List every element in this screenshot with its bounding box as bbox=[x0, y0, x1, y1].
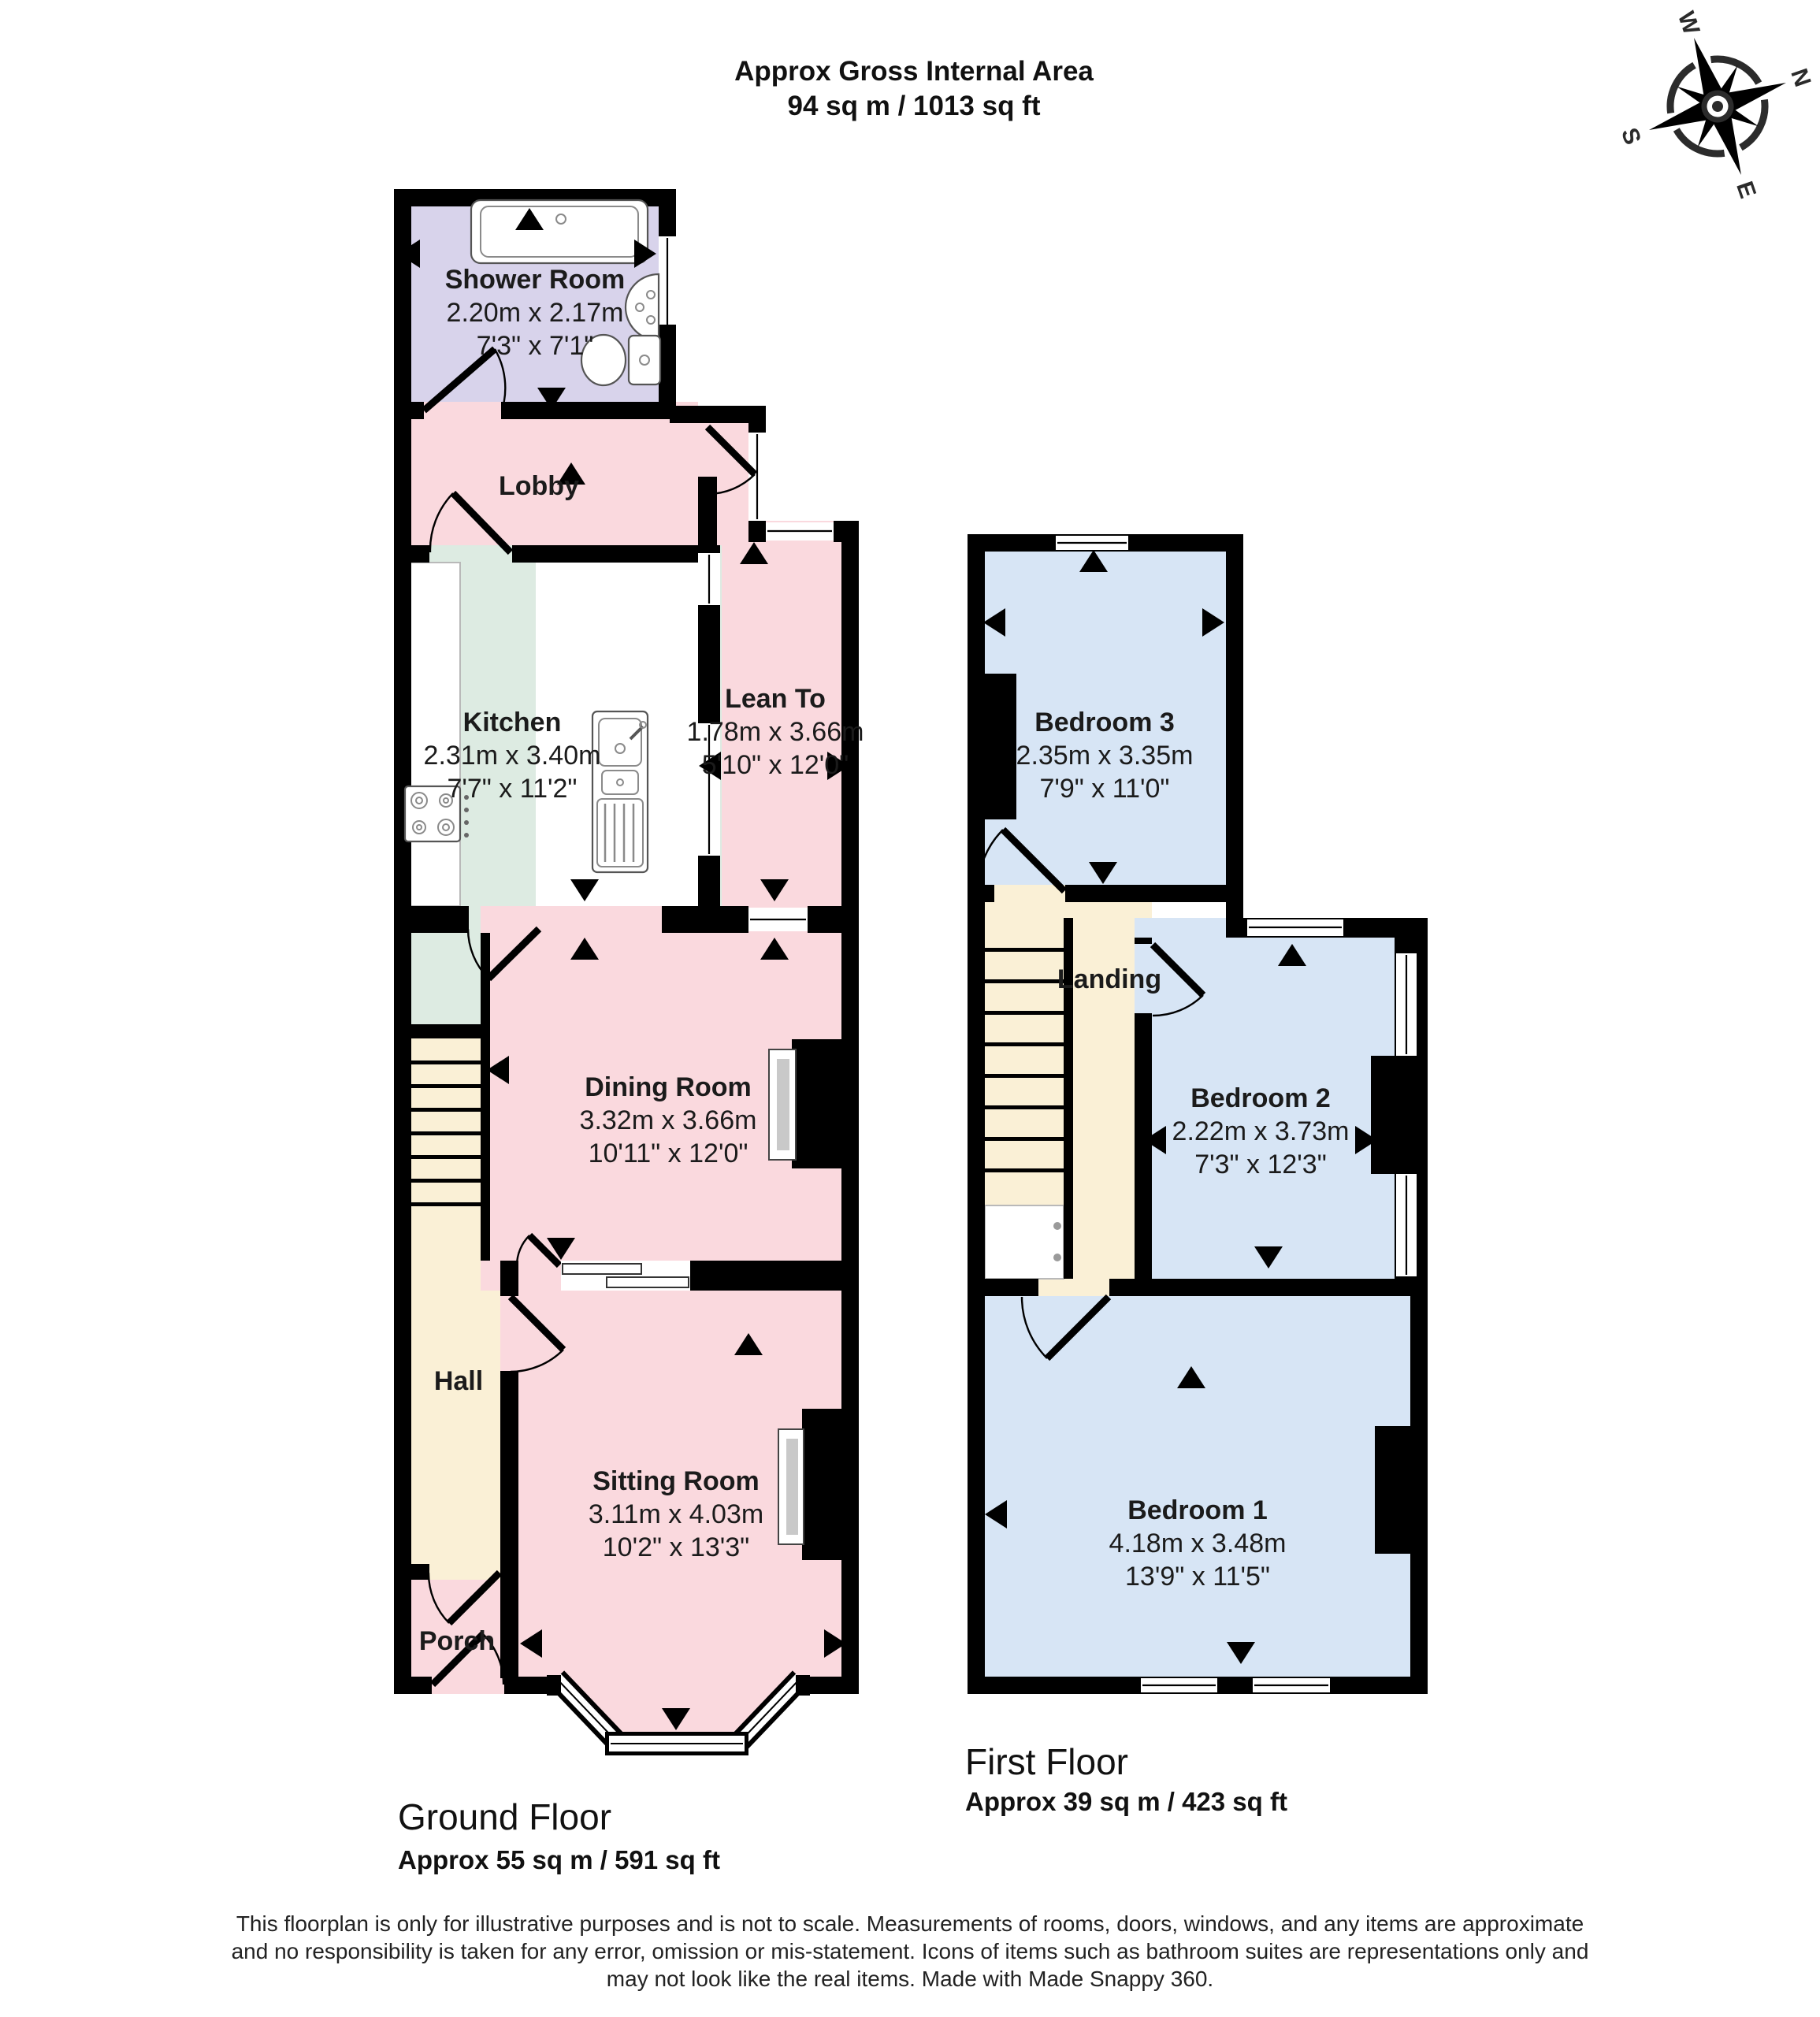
compass-e: E bbox=[1731, 178, 1761, 202]
page-title: Approx Gross Internal Area bbox=[734, 56, 1094, 87]
floorplan-canvas: Approx Gross Internal Area 94 sq m / 101… bbox=[0, 0, 1820, 2017]
svg-text:2.31m x 3.40m: 2.31m x 3.40m bbox=[424, 741, 601, 771]
svg-text:10'2" x 13'3": 10'2" x 13'3" bbox=[603, 1532, 749, 1562]
first-floor-plan: Bedroom 3 2.35m x 3.35m 7'9" x 11'0" Lan… bbox=[968, 534, 1428, 1694]
compass-n: N bbox=[1785, 65, 1815, 90]
svg-text:7'3" x 12'3": 7'3" x 12'3" bbox=[1194, 1150, 1327, 1179]
sitting-fireplace bbox=[778, 1409, 841, 1560]
disclaimer-line3: may not look like the real items. Made w… bbox=[607, 1967, 1213, 1991]
room-label-kitchen: Kitchen bbox=[463, 708, 562, 737]
room-label-sitting: Sitting Room bbox=[592, 1466, 760, 1496]
room-label-porch: Porch bbox=[419, 1626, 495, 1656]
page-subtitle: 94 sq m / 1013 sq ft bbox=[788, 91, 1041, 121]
disclaimer: This floorplan is only for illustrative … bbox=[232, 1911, 1589, 1991]
room-label-hall: Hall bbox=[434, 1366, 483, 1396]
compass-icon: N E S W bbox=[1586, 0, 1820, 232]
room-label-lean-to: Lean To bbox=[725, 684, 826, 714]
first-floor-title: First Floor bbox=[965, 1741, 1128, 1782]
bath-icon bbox=[471, 200, 648, 263]
ground-floor-title: Ground Floor bbox=[398, 1796, 611, 1837]
svg-text:2.20m x 2.17m: 2.20m x 2.17m bbox=[447, 298, 624, 328]
svg-text:13'9" x 11'5": 13'9" x 11'5" bbox=[1125, 1562, 1270, 1592]
svg-text:7'7" x 11'2": 7'7" x 11'2" bbox=[447, 774, 577, 804]
header: Approx Gross Internal Area 94 sq m / 101… bbox=[734, 56, 1094, 121]
room-label-bedroom2: Bedroom 2 bbox=[1190, 1083, 1331, 1113]
room-label-dining: Dining Room bbox=[585, 1072, 752, 1102]
room-label-lobby: Lobby bbox=[499, 471, 579, 501]
dining-sitting-sliding-door bbox=[561, 1261, 690, 1291]
first-floor-area: Approx 39 sq m / 423 sq ft bbox=[965, 1787, 1287, 1816]
room-label-shower: Shower Room bbox=[445, 265, 626, 295]
ground-floor-plan: Shower Room 2.20m x 2.17m 7'3" x 7'1" Lo… bbox=[394, 189, 864, 1755]
disclaimer-line2: and no responsibility is taken for any e… bbox=[232, 1939, 1589, 1963]
svg-text:3.11m x 4.03m: 3.11m x 4.03m bbox=[589, 1499, 763, 1529]
compass-w: W bbox=[1673, 9, 1705, 39]
svg-text:5'10" x 12'0": 5'10" x 12'0" bbox=[702, 750, 849, 780]
room-label-landing: Landing bbox=[1057, 964, 1161, 994]
cupboard-hinge-dot bbox=[1053, 1254, 1061, 1261]
svg-text:3.32m x 3.66m: 3.32m x 3.66m bbox=[580, 1105, 757, 1135]
svg-text:2.35m x 3.35m: 2.35m x 3.35m bbox=[1016, 741, 1194, 771]
svg-text:1.78m x 3.66m: 1.78m x 3.66m bbox=[687, 717, 864, 747]
floor-captions: Ground Floor Approx 55 sq m / 591 sq ft … bbox=[398, 1741, 1287, 1874]
svg-text:7'3" x 7'1": 7'3" x 7'1" bbox=[477, 331, 594, 361]
kitchen-worktop bbox=[408, 563, 460, 906]
svg-text:7'9" x 11'0": 7'9" x 11'0" bbox=[1039, 774, 1169, 804]
room-label-bedroom1: Bedroom 1 bbox=[1127, 1495, 1268, 1525]
bedroom1-chimney bbox=[1375, 1426, 1410, 1554]
cupboard-hinge-dot bbox=[1053, 1222, 1061, 1230]
cupboard-floor bbox=[985, 1205, 1064, 1279]
compass-s: S bbox=[1616, 124, 1646, 148]
bedroom3-chimney bbox=[985, 674, 1016, 819]
svg-text:2.22m x 3.73m: 2.22m x 3.73m bbox=[1172, 1116, 1350, 1146]
kitchen-sink-icon bbox=[592, 711, 648, 872]
disclaimer-line1: This floorplan is only for illustrative … bbox=[236, 1911, 1584, 1936]
floorplan-page: Approx Gross Internal Area 94 sq m / 101… bbox=[0, 0, 1820, 2017]
svg-text:4.18m x 3.48m: 4.18m x 3.48m bbox=[1109, 1529, 1287, 1558]
room-label-bedroom3: Bedroom 3 bbox=[1034, 708, 1175, 737]
ground-floor-area: Approx 55 sq m / 591 sq ft bbox=[398, 1845, 720, 1874]
svg-text:10'11" x 12'0": 10'11" x 12'0" bbox=[589, 1139, 748, 1168]
dining-fireplace bbox=[769, 1039, 841, 1168]
